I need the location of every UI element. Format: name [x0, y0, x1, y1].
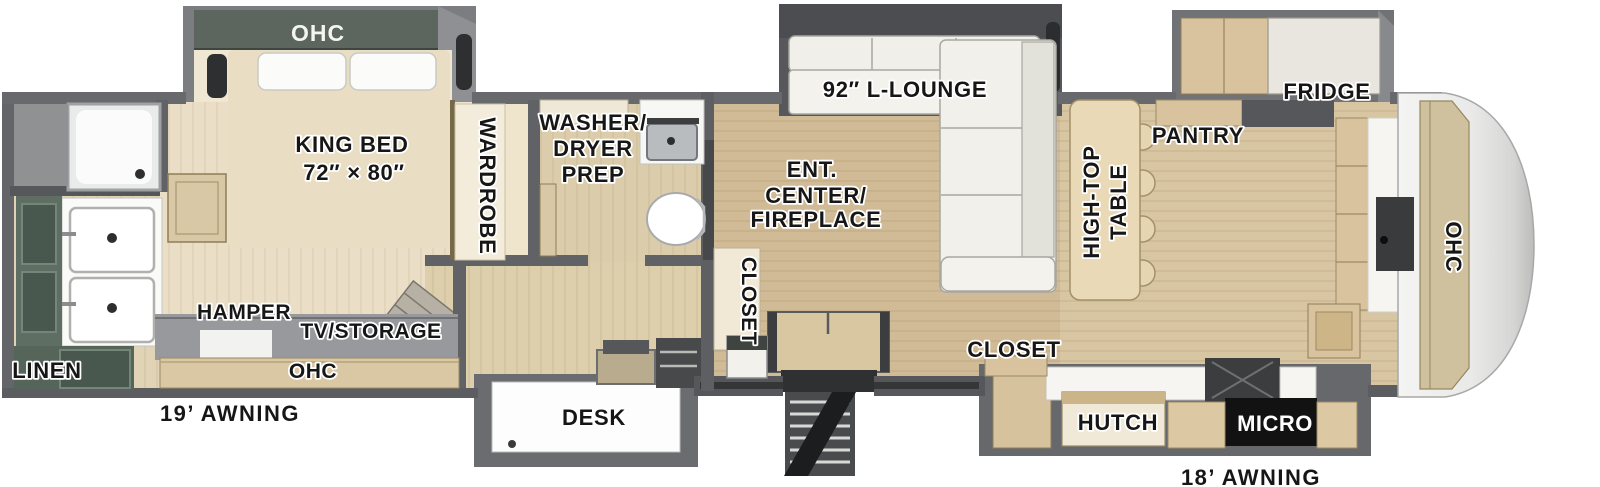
svg-text:HAMPER: HAMPER [197, 301, 291, 324]
svg-text:LINEN: LINEN [12, 358, 82, 383]
svg-text:18’ AWNING: 18’ AWNING [1181, 465, 1321, 487]
svg-text:TABLE: TABLE [1106, 164, 1131, 240]
svg-text:HUTCH: HUTCH [1078, 410, 1159, 435]
svg-text:DESK: DESK [562, 405, 626, 430]
svg-text:FRIDGE: FRIDGE [1283, 79, 1370, 104]
svg-text:MICRO: MICRO [1237, 411, 1313, 436]
svg-text:PREP: PREP [562, 162, 625, 187]
svg-text:CLOSET: CLOSET [737, 257, 760, 345]
svg-text:92″ L-LOUNGE: 92″ L-LOUNGE [823, 77, 987, 102]
svg-text:TV/STORAGE: TV/STORAGE [300, 320, 441, 343]
svg-text:CLOSET: CLOSET [967, 337, 1060, 362]
svg-text:ENT.: ENT. [787, 157, 837, 182]
svg-text:WASHER/: WASHER/ [539, 110, 647, 135]
svg-text:19’ AWNING: 19’ AWNING [160, 401, 300, 426]
svg-text:72″ × 80″: 72″ × 80″ [303, 160, 404, 185]
svg-text:HIGH-TOP: HIGH-TOP [1079, 145, 1104, 259]
svg-text:OHC: OHC [1441, 221, 1466, 272]
svg-text:WARDROBE: WARDROBE [475, 117, 500, 254]
svg-text:DRYER: DRYER [553, 136, 633, 161]
svg-text:OHC: OHC [291, 20, 345, 46]
svg-text:FIREPLACE: FIREPLACE [751, 207, 882, 232]
svg-text:KING BED: KING BED [295, 132, 408, 157]
svg-text:CENTER/: CENTER/ [765, 183, 866, 208]
svg-text:OHC: OHC [289, 360, 337, 383]
svg-text:PANTRY: PANTRY [1152, 123, 1244, 148]
